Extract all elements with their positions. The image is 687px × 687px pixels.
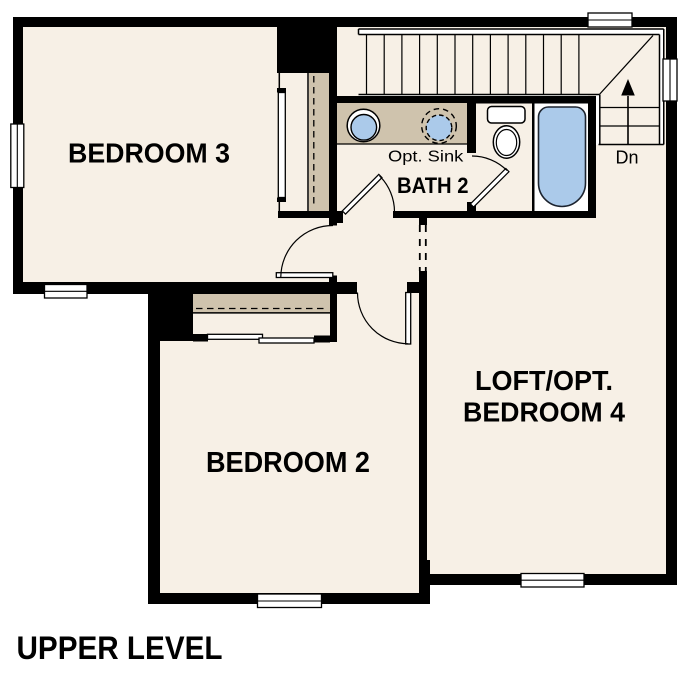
svg-text:BEDROOM 2: BEDROOM 2 <box>206 447 370 479</box>
svg-text:Opt. Sink: Opt. Sink <box>388 148 464 165</box>
svg-text:LOFT/OPT.: LOFT/OPT. <box>475 365 613 396</box>
svg-text:Dn: Dn <box>616 148 639 168</box>
svg-text:UPPER LEVEL: UPPER LEVEL <box>17 630 223 666</box>
svg-text:BATH 2: BATH 2 <box>397 173 469 198</box>
svg-text:BEDROOM 3: BEDROOM 3 <box>68 138 230 169</box>
svg-text:BEDROOM 4: BEDROOM 4 <box>463 397 625 428</box>
